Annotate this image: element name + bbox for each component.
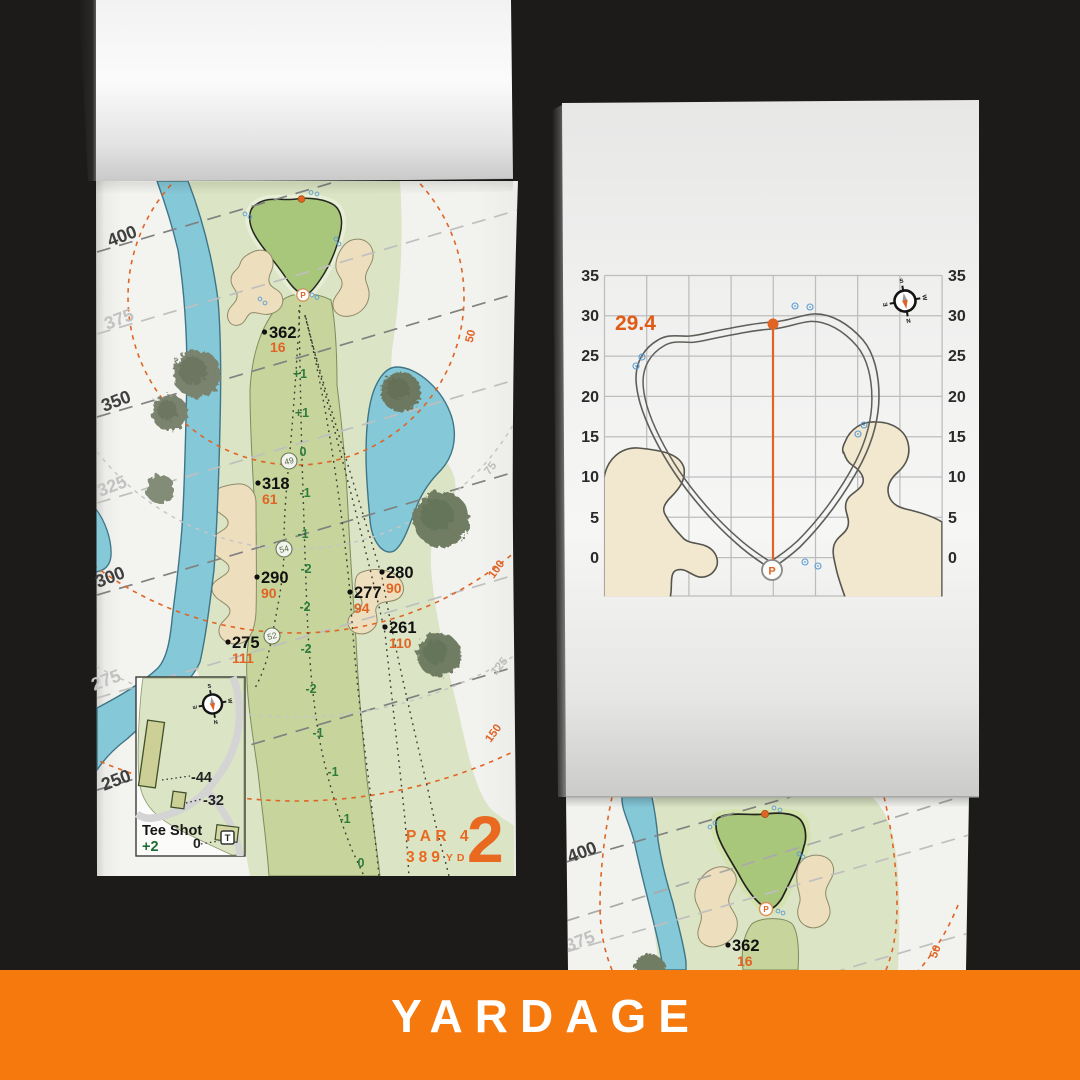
svg-text:Tee Shot: Tee Shot xyxy=(142,823,202,839)
svg-text:30: 30 xyxy=(581,308,599,325)
svg-text:+1: +1 xyxy=(295,406,309,420)
svg-text:35: 35 xyxy=(581,268,599,285)
svg-text:-2: -2 xyxy=(305,682,316,696)
svg-text:16: 16 xyxy=(737,953,753,969)
svg-text:61: 61 xyxy=(262,491,278,507)
svg-text:-2: -2 xyxy=(299,600,310,614)
svg-text:T: T xyxy=(225,833,231,844)
svg-text:30: 30 xyxy=(948,308,966,325)
svg-text:2: 2 xyxy=(467,802,504,876)
svg-text:389YD: 389YD xyxy=(406,849,468,866)
svg-text:111: 111 xyxy=(232,650,254,666)
svg-text:35: 35 xyxy=(948,268,966,285)
svg-text:0: 0 xyxy=(590,550,599,567)
svg-text:5: 5 xyxy=(948,510,957,527)
svg-text:15: 15 xyxy=(948,429,966,446)
svg-text:10: 10 xyxy=(581,469,599,486)
svg-text:YARDAGE: YARDAGE xyxy=(391,990,701,1042)
svg-text:20: 20 xyxy=(581,389,599,406)
svg-text:29.4: 29.4 xyxy=(615,312,656,335)
svg-text:-1: -1 xyxy=(312,726,323,740)
svg-text:-2: -2 xyxy=(300,562,311,576)
svg-text:-32: -32 xyxy=(203,793,224,809)
svg-text:25: 25 xyxy=(948,348,966,365)
svg-text:-44: -44 xyxy=(191,770,212,786)
svg-text:15: 15 xyxy=(581,429,599,446)
svg-text:94: 94 xyxy=(354,600,370,616)
svg-text:-2: -2 xyxy=(300,642,311,656)
svg-text:90: 90 xyxy=(386,580,402,596)
svg-text:-1: -1 xyxy=(327,765,338,779)
svg-text:90: 90 xyxy=(261,585,277,601)
svg-text:0: 0 xyxy=(300,445,307,459)
svg-text:5: 5 xyxy=(590,510,599,527)
svg-text:+2: +2 xyxy=(142,839,159,855)
svg-text:-1: -1 xyxy=(299,486,310,500)
svg-text:+1: +1 xyxy=(293,367,307,381)
svg-text:20: 20 xyxy=(948,389,966,406)
svg-text:PAR 4: PAR 4 xyxy=(406,828,473,845)
svg-text:16: 16 xyxy=(270,339,286,355)
svg-text:P: P xyxy=(768,566,775,578)
svg-text:25: 25 xyxy=(581,348,599,365)
svg-text:P: P xyxy=(763,905,769,914)
svg-text:10: 10 xyxy=(948,469,966,486)
svg-text:-1: -1 xyxy=(297,527,308,541)
svg-text:P: P xyxy=(300,291,306,300)
svg-text:110: 110 xyxy=(389,635,412,651)
svg-text:0: 0 xyxy=(948,550,957,567)
svg-text:0: 0 xyxy=(358,856,365,870)
svg-text:-1: -1 xyxy=(339,812,350,826)
